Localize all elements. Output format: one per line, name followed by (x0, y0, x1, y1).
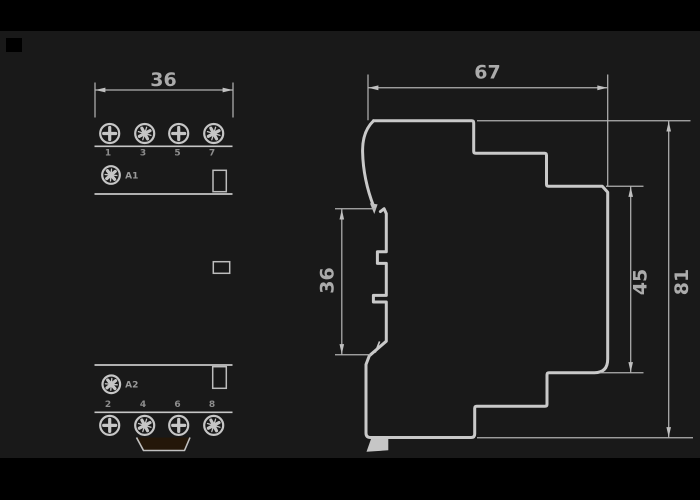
side-depth-dimension: 67 (368, 62, 608, 187)
side-overall-height-dimension: 81 (477, 121, 693, 438)
side-profile-outline (366, 121, 608, 438)
terminal-number: 1 (105, 149, 111, 159)
pozidriv-screw-icon (196, 408, 231, 443)
coil-terminal-a2-label: A2 (125, 380, 138, 390)
pozidriv-screw-icon (94, 367, 129, 402)
terminal-number: 4 (140, 400, 146, 410)
front-view: 36 (94, 69, 233, 451)
side-rail-label: 36 (317, 267, 339, 293)
phillips-screw-icon (169, 124, 188, 143)
dim-arrow-right (597, 85, 607, 90)
bottom-margin-band (0, 458, 700, 500)
side-rail-dimension: 36 (317, 209, 376, 355)
terminal-number: 3 (140, 149, 146, 159)
pozidriv-screw-icon (94, 158, 129, 193)
dim-arrow-up (666, 121, 671, 131)
technical-drawing-screenshot: 36 (0, 0, 700, 500)
rail-hook-foot (367, 439, 389, 452)
terminal-numbers-top: 1 3 5 7 (105, 149, 215, 159)
contactor-dimension-diagram: 36 (0, 0, 700, 500)
terminal-numbers-bottom: 2 4 6 8 (105, 400, 215, 410)
center-detail-window (213, 262, 229, 274)
dim-arrow-left (95, 88, 105, 93)
indicator-window-top (213, 170, 226, 191)
coil-terminal-a1-label: A1 (125, 172, 138, 182)
dim-arrow-down (340, 344, 345, 354)
side-body-height-label: 45 (630, 269, 652, 295)
dim-arrow-right (223, 88, 233, 93)
terminal-number: 8 (209, 400, 215, 410)
din-release-clip-fill (137, 438, 191, 451)
corner-artifact-mark (6, 38, 22, 52)
side-depth-label: 67 (474, 62, 500, 84)
top-margin-band (0, 0, 700, 31)
front-width-dimension: 36 (95, 69, 233, 118)
phillips-screw-icon (169, 416, 188, 435)
dim-arrow-down (666, 427, 671, 437)
terminal-number: 6 (174, 400, 180, 410)
phillips-screw-icon (100, 416, 119, 435)
terminal-number: 5 (174, 149, 180, 159)
side-view: 67 36 45 (317, 62, 694, 452)
terminal-number: 7 (209, 149, 215, 159)
indicator-window-bottom (213, 367, 227, 389)
phillips-screw-icon (100, 124, 119, 143)
side-overall-height-label: 81 (671, 269, 693, 295)
dim-arrow-left (368, 85, 378, 90)
dim-arrow-up (628, 187, 633, 197)
dim-arrow-up (340, 209, 345, 219)
dim-arrow-down (628, 362, 633, 372)
front-width-label: 36 (150, 69, 176, 91)
terminal-number: 2 (105, 400, 111, 410)
clip-spring-curve (363, 121, 374, 207)
